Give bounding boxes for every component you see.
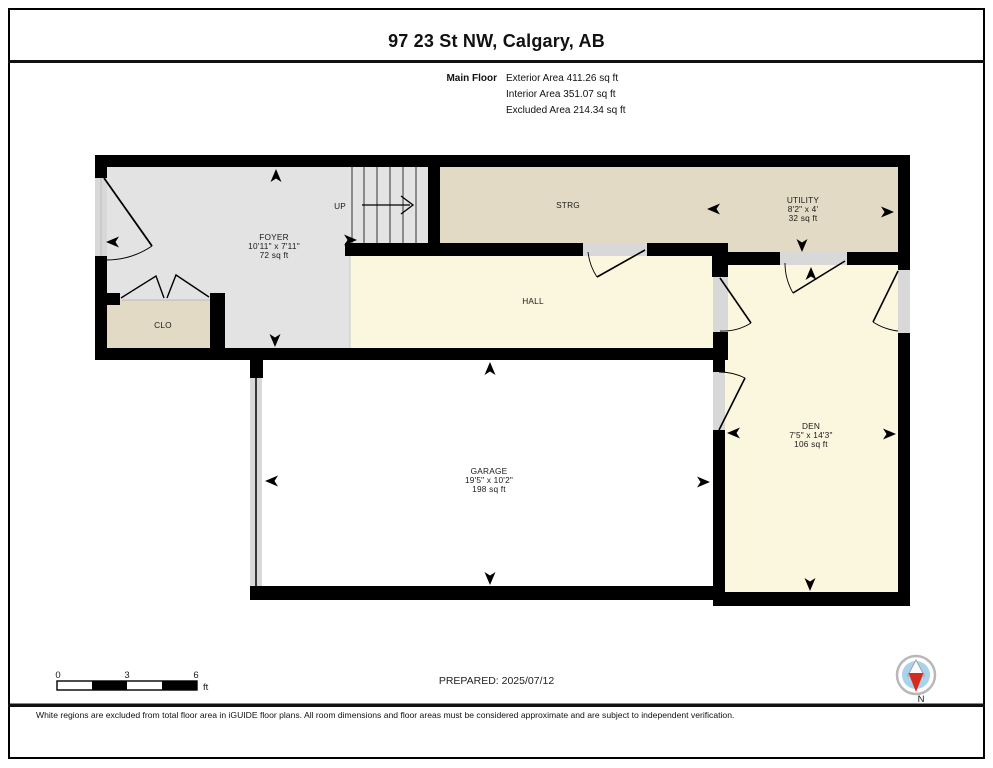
wall-top [95,155,910,167]
scale-tick-3: 3 [124,670,129,681]
wall-garage-den-lower [713,430,725,592]
scale-tick-6: 6 [193,670,198,681]
wall-den-bottom [713,592,910,606]
utility-door-opening [780,252,847,265]
room-label-clo: CLO [154,320,172,330]
wall-right-upper [898,155,910,270]
scale-tick-0: 0 [55,670,60,681]
scale-bar: 0 3 6 ft [55,670,208,693]
floor-plan-svg: FOYER 10'11" x 7'11" 72 sq ft UP STRG UT… [0,0,993,768]
wall-garage-den-upper [713,360,725,372]
wall-foyer-hall-bottom [95,348,728,360]
room-fills [107,167,898,592]
footer-rule [8,704,985,708]
den-exterior-door-opening [898,270,910,333]
wall-stair-strg-bottom-left [345,243,583,256]
svg-text:198 sq ft: 198 sq ft [472,484,506,494]
wall-garage-bottom [250,586,725,600]
wall-utility-bottom-left [718,252,780,265]
wall-clo-left-stub [107,293,120,305]
svg-text:106 sq ft: 106 sq ft [794,439,828,449]
compass-north-label: N [918,694,925,705]
wall-left-stub [95,167,107,178]
wall-right-lower [898,333,910,605]
room-label-strg: STRG [556,200,580,210]
scale-ticks: 0 3 6 [55,670,198,681]
wall-stairs-right [428,167,440,256]
scale-unit-label: ft [203,682,209,693]
stairs-up-label: UP [334,201,346,211]
room-label-hall: HALL [522,296,544,306]
wall-hall-den-lower [713,332,728,360]
title-rule [8,60,985,63]
wall-garage-door-stub [250,360,263,378]
scale-bar-segment [92,681,127,690]
room-strg-utility-fill [440,167,898,252]
svg-text:72 sq ft: 72 sq ft [260,250,289,260]
floorplan-page: 97 23 St NW, Calgary, AB Main Floor Exte… [0,0,993,768]
room-label-utility: UTILITY 8'2" x 4' 32 sq ft [787,195,820,223]
svg-text:32 sq ft: 32 sq ft [789,213,818,223]
scale-bar-segment [162,681,197,690]
compass: N [897,656,935,705]
wall-clo-right-stub [210,293,225,348]
wall-left-lower [95,256,107,357]
